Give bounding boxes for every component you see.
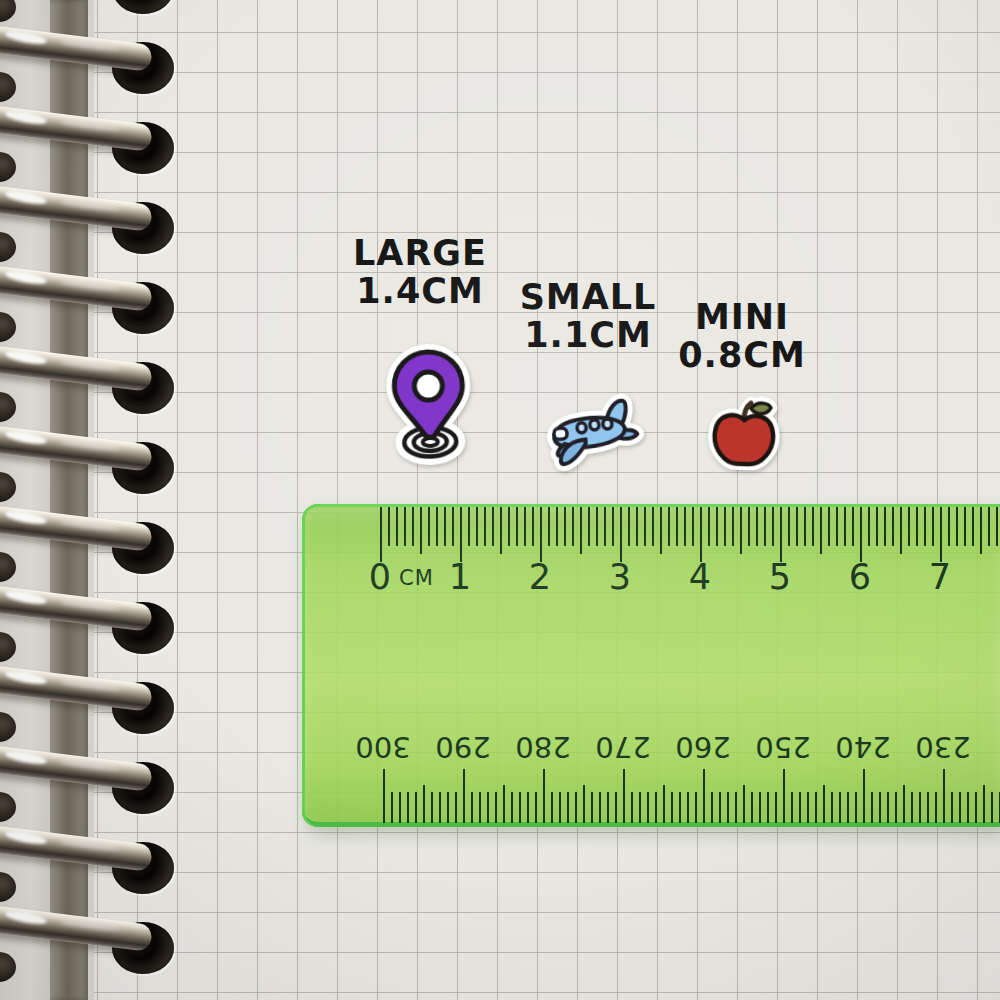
ruler-tick bbox=[836, 507, 838, 546]
ruler-tick bbox=[948, 507, 950, 546]
apple-icon bbox=[704, 395, 785, 472]
ruler-tick bbox=[980, 507, 982, 554]
location-pin-icon bbox=[381, 340, 477, 467]
ruler-tick bbox=[988, 507, 990, 546]
label-small: SMALL 1.1CM bbox=[520, 278, 657, 354]
ruler-mm-number: 300 bbox=[355, 732, 410, 761]
ruler-tick bbox=[807, 792, 809, 823]
ruler-tick bbox=[495, 792, 497, 823]
ruler-tick bbox=[415, 792, 417, 823]
metal-highlight bbox=[4, 669, 47, 687]
ruler-tick bbox=[511, 792, 513, 823]
ruler-tick bbox=[748, 507, 750, 546]
ruler-tick bbox=[991, 792, 993, 823]
ring-wire bbox=[0, 585, 153, 632]
ruler-tick bbox=[756, 507, 758, 546]
ruler-tick bbox=[863, 769, 865, 823]
ruler-tick bbox=[388, 507, 390, 546]
metal-highlight bbox=[60, 39, 120, 52]
ruler-tick bbox=[711, 792, 713, 823]
binder-ring bbox=[0, 668, 210, 748]
ruler-tick bbox=[727, 792, 729, 823]
ruler-tick bbox=[879, 792, 881, 823]
ruler-tick bbox=[463, 769, 465, 823]
metal-highlight bbox=[4, 589, 47, 607]
ruler-tick bbox=[591, 792, 593, 823]
ruler-tick bbox=[423, 785, 425, 823]
ruler-mm-number: 230 bbox=[915, 732, 970, 761]
ruler-tick bbox=[452, 507, 454, 546]
ruler-tick bbox=[540, 507, 542, 562]
ruler-tick bbox=[719, 792, 721, 823]
ruler-tick bbox=[927, 792, 929, 823]
ruler-tick bbox=[671, 792, 673, 823]
ruler-tick bbox=[524, 507, 526, 546]
ruler-tick bbox=[796, 507, 798, 546]
ruler-tick bbox=[823, 785, 825, 823]
ruler-tick bbox=[380, 507, 382, 562]
ruler-tick bbox=[447, 792, 449, 823]
ruler-tick bbox=[975, 792, 977, 823]
ring-wire bbox=[0, 665, 153, 712]
ruler-tick bbox=[583, 785, 585, 823]
ruler-tick bbox=[772, 507, 774, 546]
ruler-tick bbox=[724, 507, 726, 546]
binder-ring bbox=[0, 908, 210, 988]
ruler-tick bbox=[700, 507, 702, 562]
metal-highlight bbox=[60, 919, 120, 932]
ruler-tick bbox=[812, 507, 814, 546]
ruler-tick bbox=[420, 507, 422, 554]
ruler-tick bbox=[783, 769, 785, 823]
ruler-tick bbox=[468, 507, 470, 546]
ruler-tick bbox=[492, 507, 494, 546]
ruler-tick bbox=[543, 769, 545, 823]
metal-highlight bbox=[60, 439, 120, 452]
ruler-tick bbox=[919, 792, 921, 823]
ruler-tick bbox=[828, 507, 830, 546]
ruler-tick bbox=[743, 785, 745, 823]
metal-highlight bbox=[4, 509, 47, 527]
metal-highlight bbox=[60, 119, 120, 132]
ring-back bbox=[0, 392, 16, 422]
binder-ring bbox=[0, 188, 210, 268]
ruler-tick bbox=[815, 792, 817, 823]
ruler-tick bbox=[876, 507, 878, 546]
ruler-tick bbox=[604, 507, 606, 546]
ring-back bbox=[0, 952, 16, 982]
ruler-tick bbox=[575, 792, 577, 823]
ruler-tick bbox=[735, 792, 737, 823]
ruler-tick bbox=[607, 792, 609, 823]
ruler-tick bbox=[887, 792, 889, 823]
ring-back bbox=[0, 872, 16, 902]
ruler-tick bbox=[967, 792, 969, 823]
ring-wire bbox=[0, 905, 153, 952]
label-large: LARGE 1.4CM bbox=[353, 234, 487, 310]
ruler-tick bbox=[572, 507, 574, 546]
binder-ring bbox=[0, 748, 210, 828]
ruler-tick bbox=[892, 507, 894, 546]
ruler-tick bbox=[996, 507, 998, 546]
ruler-cm-number: 5 bbox=[769, 560, 791, 595]
ruler-tick bbox=[527, 792, 529, 823]
ring-wire bbox=[0, 105, 153, 152]
metal-highlight bbox=[4, 429, 47, 447]
binder-ring bbox=[0, 588, 210, 668]
metal-highlight bbox=[60, 679, 120, 692]
ruler-tick bbox=[932, 507, 934, 546]
ruler-tick bbox=[471, 792, 473, 823]
ruler-tick bbox=[972, 507, 974, 546]
ruler-tick bbox=[588, 507, 590, 546]
ruler-tick bbox=[439, 792, 441, 823]
ruler-tick bbox=[455, 792, 457, 823]
location-pin-sticker bbox=[381, 340, 477, 467]
ring-back bbox=[0, 0, 16, 22]
label-large-name: LARGE bbox=[353, 234, 487, 272]
ruler-cm-number: 0 bbox=[369, 560, 391, 595]
ruler-tick bbox=[799, 792, 801, 823]
label-small-name: SMALL bbox=[520, 278, 657, 316]
metal-highlight bbox=[60, 519, 120, 532]
ruler-tick bbox=[655, 792, 657, 823]
ring-back bbox=[0, 312, 16, 342]
ruler: 01234567 CM 300290280270260250240230 bbox=[302, 504, 1000, 827]
label-mini-name: MINI bbox=[678, 298, 806, 336]
label-small-size: 1.1CM bbox=[520, 316, 657, 354]
ring-wire bbox=[0, 425, 153, 472]
metal-highlight bbox=[4, 189, 47, 207]
ruler-tick bbox=[684, 507, 686, 546]
ruler-tick bbox=[487, 792, 489, 823]
ruler-tick bbox=[900, 507, 902, 554]
ruler-tick bbox=[732, 507, 734, 546]
ruler-tick bbox=[884, 507, 886, 546]
ruler-tick bbox=[412, 507, 414, 546]
ruler-cm-number: 2 bbox=[529, 560, 551, 595]
binder-ring bbox=[0, 428, 210, 508]
ruler-tick bbox=[615, 792, 617, 823]
ruler-tick bbox=[844, 507, 846, 546]
ruler-cm-number: 7 bbox=[929, 560, 951, 595]
ruler-tick bbox=[644, 507, 646, 546]
binder-ring bbox=[0, 508, 210, 588]
ring-wire bbox=[0, 25, 153, 72]
metal-highlight bbox=[4, 269, 47, 287]
ruler-tick bbox=[695, 792, 697, 823]
ruler-tick bbox=[940, 507, 942, 562]
ruler-tick bbox=[804, 507, 806, 546]
binder-ring bbox=[0, 268, 210, 348]
ruler-tick bbox=[679, 792, 681, 823]
ruler-tick bbox=[391, 792, 393, 823]
ruler-tick bbox=[788, 507, 790, 546]
metal-highlight bbox=[60, 199, 120, 212]
binder-ring bbox=[0, 828, 210, 908]
ruler-tick bbox=[791, 792, 793, 823]
ruler-tick bbox=[436, 507, 438, 546]
ruler-tick bbox=[564, 507, 566, 546]
label-mini: MINI 0.8CM bbox=[678, 298, 806, 374]
ruler-tick bbox=[847, 792, 849, 823]
ruler-tick bbox=[916, 507, 918, 546]
ruler-tick bbox=[612, 507, 614, 546]
ruler-tick bbox=[660, 507, 662, 554]
ruler-tick bbox=[708, 507, 710, 546]
metal-highlight bbox=[4, 829, 47, 847]
ruler-mm-number: 270 bbox=[595, 732, 650, 761]
ring-back bbox=[0, 472, 16, 502]
ruler-tick bbox=[596, 507, 598, 546]
ruler-tick bbox=[631, 792, 633, 823]
ruler-mm-number: 250 bbox=[755, 732, 810, 761]
ruler-tick bbox=[476, 507, 478, 546]
ruler-tick bbox=[956, 507, 958, 546]
ring-wire bbox=[0, 825, 153, 872]
metal-highlight bbox=[4, 749, 47, 767]
ruler-tick bbox=[628, 507, 630, 546]
ring-wire bbox=[0, 505, 153, 552]
ruler-cm-number: 1 bbox=[449, 560, 471, 595]
ring-back bbox=[0, 712, 16, 742]
ruler-tick bbox=[911, 792, 913, 823]
ruler-tick bbox=[687, 792, 689, 823]
metal-highlight bbox=[4, 349, 47, 367]
ruler-tick bbox=[503, 785, 505, 823]
ruler-tick bbox=[404, 507, 406, 546]
metal-highlight bbox=[60, 839, 120, 852]
label-mini-size: 0.8CM bbox=[678, 336, 806, 374]
ruler-tick bbox=[951, 792, 953, 823]
metal-highlight bbox=[60, 759, 120, 772]
ruler-tick bbox=[668, 507, 670, 546]
ruler-tick bbox=[535, 792, 537, 823]
ruler-tick bbox=[484, 507, 486, 546]
ruler-tick bbox=[623, 769, 625, 823]
ring-back bbox=[0, 632, 16, 662]
ruler-tick bbox=[775, 792, 777, 823]
ruler-tick bbox=[959, 792, 961, 823]
ruler-tick bbox=[559, 792, 561, 823]
ring-back bbox=[0, 792, 16, 822]
ring-wire bbox=[0, 745, 153, 792]
ring-back bbox=[0, 552, 16, 582]
ruler-tick bbox=[599, 792, 601, 823]
binder-ring bbox=[0, 28, 210, 108]
ruler-tick bbox=[839, 792, 841, 823]
ruler-tick bbox=[924, 507, 926, 546]
binder-ring bbox=[0, 108, 210, 188]
ruler-tick bbox=[428, 507, 430, 546]
ruler-tick bbox=[676, 507, 678, 546]
ruler-tick bbox=[399, 792, 401, 823]
ruler-tick bbox=[500, 507, 502, 554]
ruler-tick bbox=[852, 507, 854, 546]
binder-ring bbox=[0, 348, 210, 428]
ruler-tick bbox=[759, 792, 761, 823]
metal-highlight bbox=[4, 109, 47, 127]
ruler-tick bbox=[935, 792, 937, 823]
metal-highlight bbox=[60, 279, 120, 292]
ruler-cm-number: 3 bbox=[609, 560, 631, 595]
ruler-tick bbox=[716, 507, 718, 546]
ruler-tick bbox=[508, 507, 510, 546]
ruler-tick bbox=[740, 507, 742, 554]
ruler-mm-number: 260 bbox=[675, 732, 730, 761]
ruler-tick bbox=[548, 507, 550, 546]
ruler-tick bbox=[860, 507, 862, 562]
ruler-tick bbox=[903, 785, 905, 823]
ruler-tick bbox=[943, 769, 945, 823]
punch-hole bbox=[112, 0, 174, 14]
ruler-cm-number: 6 bbox=[849, 560, 871, 595]
ruler-tick bbox=[636, 507, 638, 546]
ring-wire bbox=[0, 265, 153, 312]
ruler-tick bbox=[519, 792, 521, 823]
ruler-mm-number: 290 bbox=[435, 732, 490, 761]
ruler-tick bbox=[983, 785, 985, 823]
ruler-tick bbox=[780, 507, 782, 562]
label-large-size: 1.4CM bbox=[353, 272, 487, 310]
ruler-tick bbox=[663, 785, 665, 823]
ruler-tick bbox=[871, 792, 873, 823]
airplane-icon bbox=[538, 391, 647, 474]
ruler-unit-label: CM bbox=[399, 566, 434, 590]
ruler-tick bbox=[767, 792, 769, 823]
ruler-tick bbox=[820, 507, 822, 554]
ruler-tick bbox=[396, 507, 398, 546]
binder-ring bbox=[0, 0, 210, 28]
metal-highlight bbox=[4, 29, 47, 47]
ruler-tick bbox=[647, 792, 649, 823]
ruler-tick bbox=[652, 507, 654, 546]
ruler-tick bbox=[964, 507, 966, 546]
ring-wire bbox=[0, 185, 153, 232]
ruler-tick bbox=[895, 792, 897, 823]
ruler-tick bbox=[532, 507, 534, 546]
apple-sticker bbox=[704, 395, 785, 472]
ruler-tick bbox=[692, 507, 694, 546]
ruler-tick bbox=[764, 507, 766, 546]
ruler-tick bbox=[639, 792, 641, 823]
ruler-tick bbox=[580, 507, 582, 554]
ruler-tick bbox=[567, 792, 569, 823]
ruler-tick bbox=[703, 769, 705, 823]
ruler-mm-number: 280 bbox=[515, 732, 570, 761]
ruler-tick bbox=[868, 507, 870, 546]
ring-back bbox=[0, 72, 16, 102]
ruler-tick bbox=[383, 769, 385, 823]
ring-back bbox=[0, 152, 16, 182]
ruler-tick bbox=[831, 792, 833, 823]
ruler-tick bbox=[556, 507, 558, 546]
ruler-mm-number: 240 bbox=[835, 732, 890, 761]
ruler-tick bbox=[551, 792, 553, 823]
ruler-tick bbox=[407, 792, 409, 823]
ruler-tick bbox=[431, 792, 433, 823]
ruler-tick bbox=[516, 507, 518, 546]
ruler-tick bbox=[751, 792, 753, 823]
ruler-cm-number: 4 bbox=[689, 560, 711, 595]
ruler-tick bbox=[908, 507, 910, 546]
ruler-tick bbox=[620, 507, 622, 562]
ruler-tick bbox=[479, 792, 481, 823]
metal-highlight bbox=[60, 599, 120, 612]
ruler-tick bbox=[444, 507, 446, 546]
ruler-tick bbox=[460, 507, 462, 562]
ruler-tick bbox=[855, 792, 857, 823]
airplane-sticker bbox=[538, 391, 647, 474]
metal-highlight bbox=[60, 359, 120, 372]
metal-highlight bbox=[4, 909, 47, 927]
ring-back bbox=[0, 232, 16, 262]
ring-wire bbox=[0, 345, 153, 392]
